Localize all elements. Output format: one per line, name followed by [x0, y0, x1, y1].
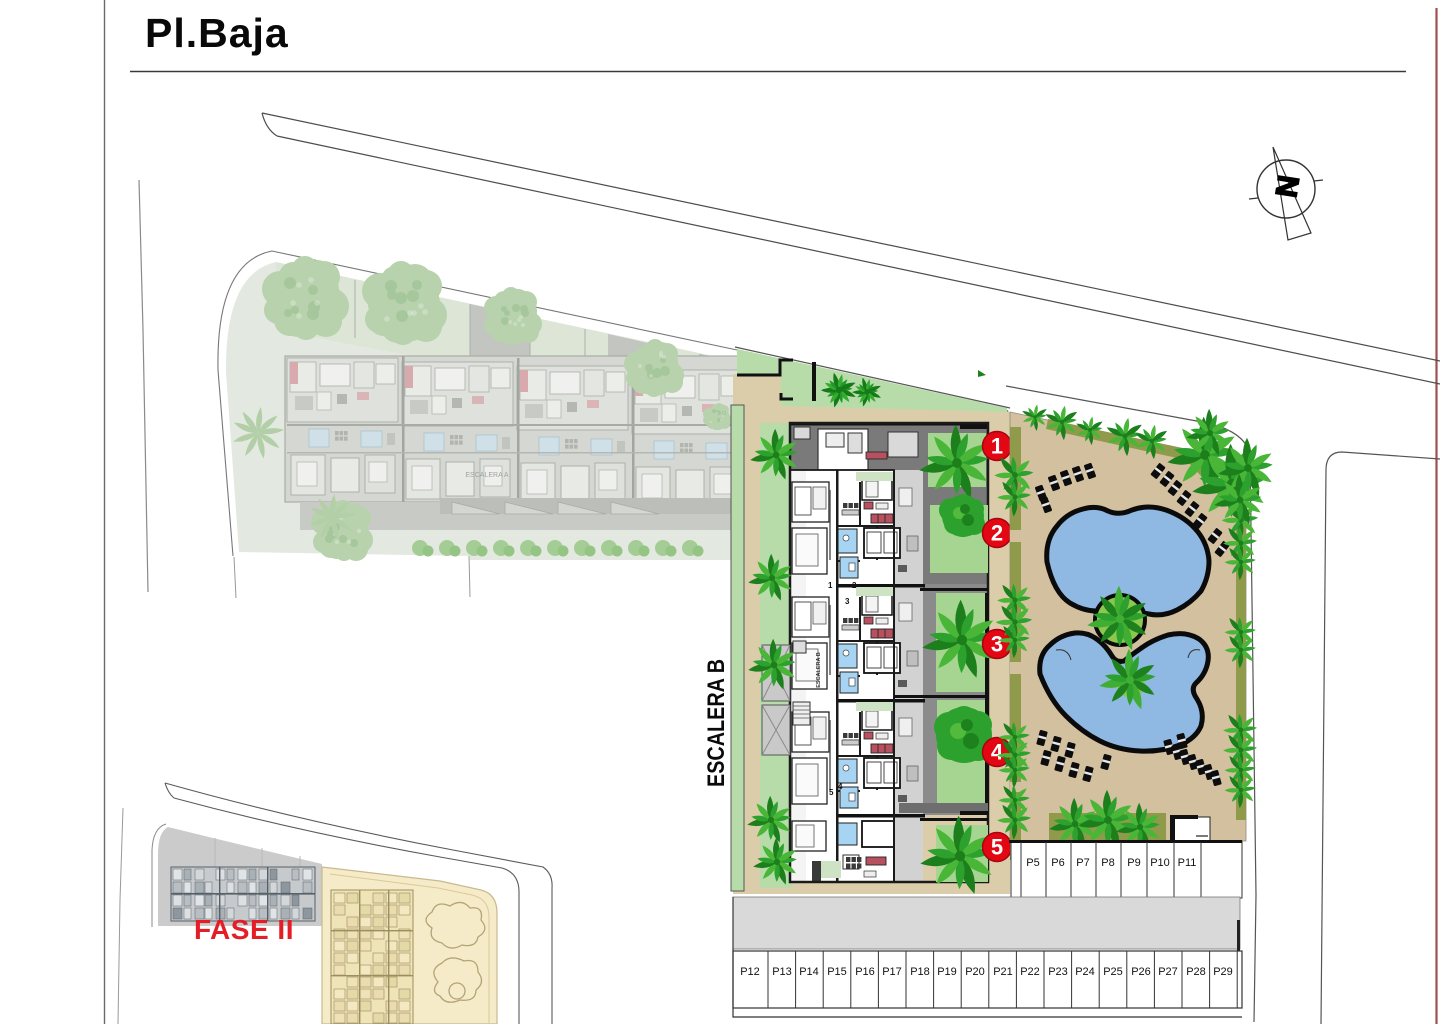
svg-text:1: 1 — [991, 434, 1003, 459]
svg-text:4: 4 — [991, 740, 1004, 765]
svg-text:P27: P27 — [1158, 966, 1178, 978]
svg-text:P11: P11 — [1178, 857, 1197, 869]
svg-text:4: 4 — [838, 782, 843, 791]
svg-text:P16: P16 — [855, 966, 875, 978]
svg-text:P29: P29 — [1213, 966, 1233, 978]
svg-text:P12: P12 — [740, 966, 760, 978]
svg-text:P13: P13 — [772, 966, 792, 978]
svg-text:5: 5 — [829, 788, 834, 797]
svg-text:P17: P17 — [882, 966, 902, 978]
svg-text:P28: P28 — [1186, 966, 1206, 978]
svg-text:5: 5 — [991, 835, 1003, 860]
svg-text:P26: P26 — [1131, 966, 1151, 978]
svg-text:P21: P21 — [993, 966, 1013, 978]
svg-text:ESCALERA B: ESCALERA B — [816, 652, 822, 688]
svg-text:3: 3 — [991, 632, 1003, 657]
svg-text:P8: P8 — [1101, 857, 1114, 869]
svg-text:P7: P7 — [1076, 857, 1089, 869]
svg-text:P19: P19 — [937, 966, 957, 978]
svg-text:P20: P20 — [965, 966, 985, 978]
svg-text:2: 2 — [852, 581, 857, 590]
svg-text:2: 2 — [991, 521, 1003, 546]
svg-text:P15: P15 — [827, 966, 847, 978]
svg-text:1: 1 — [828, 581, 833, 590]
svg-text:P6: P6 — [1051, 857, 1064, 869]
svg-text:3: 3 — [845, 597, 850, 606]
svg-text:P9: P9 — [1127, 857, 1140, 869]
svg-text:Pl.Baja: Pl.Baja — [145, 10, 289, 56]
svg-text:P5: P5 — [1026, 857, 1039, 869]
svg-text:ESCALERA A: ESCALERA A — [465, 472, 509, 479]
svg-text:FASE II: FASE II — [194, 914, 294, 945]
svg-text:P22: P22 — [1020, 966, 1040, 978]
svg-text:P14: P14 — [799, 966, 819, 978]
svg-text:P10: P10 — [1150, 857, 1170, 869]
svg-text:P24: P24 — [1075, 966, 1095, 978]
svg-text:ESCALERA B: ESCALERA B — [703, 659, 730, 787]
svg-text:P25: P25 — [1103, 966, 1123, 978]
svg-text:P18: P18 — [910, 966, 930, 978]
svg-text:P23: P23 — [1048, 966, 1068, 978]
